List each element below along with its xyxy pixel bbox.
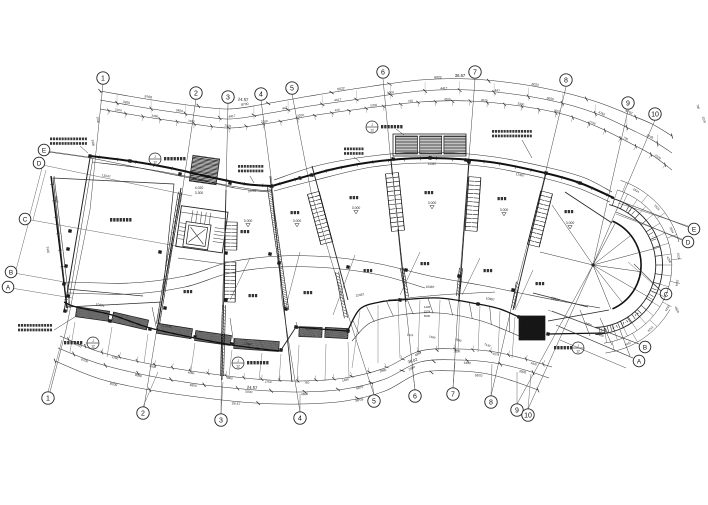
svg-text:8: 8 (564, 78, 568, 85)
svg-text:12: 12 (236, 364, 240, 368)
svg-text:5: 5 (290, 86, 294, 93)
svg-text:3300: 3300 (46, 246, 51, 253)
svg-text:24.57: 24.57 (247, 385, 258, 391)
svg-text:3: 3 (226, 95, 230, 102)
svg-text:2760: 2760 (265, 380, 272, 384)
svg-text:5200: 5200 (370, 103, 377, 108)
svg-text:7: 7 (451, 392, 455, 399)
svg-text:4200: 4200 (444, 97, 451, 101)
svg-text:4600: 4600 (301, 392, 309, 396)
svg-text:760: 760 (304, 381, 310, 385)
svg-text:6: 6 (413, 394, 417, 401)
svg-text:10: 10 (651, 112, 659, 119)
svg-text:420: 420 (334, 108, 340, 113)
svg-text:5: 5 (372, 399, 376, 406)
svg-text:12467: 12467 (428, 162, 437, 166)
svg-text:10: 10 (524, 413, 532, 420)
svg-text:447: 447 (494, 88, 500, 93)
svg-text:3.000: 3.000 (500, 208, 509, 212)
svg-text:1524: 1524 (407, 333, 414, 338)
svg-text:1: 1 (46, 396, 50, 403)
svg-text:1: 1 (101, 76, 105, 83)
svg-text:3.000: 3.000 (566, 221, 575, 225)
svg-text:C: C (23, 216, 28, 223)
svg-text:B: B (643, 344, 647, 351)
svg-text:4: 4 (259, 92, 263, 99)
svg-text:7: 7 (473, 70, 477, 77)
svg-text:D: D (686, 239, 691, 246)
svg-text:3.000: 3.000 (244, 219, 253, 223)
svg-text:E: E (42, 147, 46, 154)
svg-text:2460: 2460 (188, 119, 195, 124)
svg-text:1524: 1524 (676, 252, 681, 259)
svg-text:5000: 5000 (424, 314, 431, 318)
svg-text:4.020: 4.020 (195, 186, 204, 190)
svg-text:E: E (692, 226, 696, 233)
svg-text:2: 2 (141, 411, 145, 418)
svg-text:4: 4 (298, 416, 302, 423)
svg-text:9: 9 (515, 408, 519, 415)
svg-text:3.000: 3.000 (428, 201, 437, 205)
svg-text:3: 3 (219, 418, 223, 425)
svg-text:B: B (9, 269, 13, 276)
svg-text:24.57: 24.57 (238, 97, 250, 103)
svg-text:6922: 6922 (434, 75, 442, 79)
svg-text:12: 12 (91, 344, 95, 348)
svg-text:24.57: 24.57 (232, 401, 241, 406)
svg-text:720: 720 (408, 99, 414, 104)
svg-text:4400: 4400 (464, 361, 472, 366)
svg-text:5000: 5000 (245, 389, 253, 394)
svg-text:3.300: 3.300 (195, 191, 204, 195)
svg-text:2020: 2020 (481, 98, 488, 103)
svg-text:3.000: 3.000 (293, 219, 302, 223)
svg-text:3.000: 3.000 (352, 206, 361, 210)
svg-text:8: 8 (489, 400, 493, 407)
svg-text:1428: 1428 (424, 305, 431, 309)
svg-text:5870: 5870 (475, 373, 483, 378)
svg-text:7200: 7200 (261, 119, 268, 124)
svg-text:12: 12 (153, 160, 157, 164)
svg-text:12: 12 (370, 128, 374, 132)
svg-text:4800: 4800 (226, 376, 233, 381)
svg-text:9: 9 (626, 101, 630, 108)
svg-text:6: 6 (381, 70, 385, 77)
svg-text:10987: 10987 (426, 285, 435, 289)
svg-text:10201: 10201 (248, 189, 257, 193)
svg-text:8400: 8400 (55, 196, 60, 203)
svg-text:4417: 4417 (440, 86, 447, 90)
svg-text:A: A (6, 284, 11, 291)
svg-text:2000: 2000 (454, 349, 461, 353)
svg-text:36.57: 36.57 (455, 73, 466, 78)
svg-text:12: 12 (576, 349, 580, 353)
svg-text:A: A (637, 358, 642, 365)
svg-text:2: 2 (194, 91, 198, 98)
svg-text:D: D (37, 160, 42, 167)
svg-text:10467: 10467 (306, 327, 315, 331)
svg-text:2020: 2020 (224, 123, 231, 128)
